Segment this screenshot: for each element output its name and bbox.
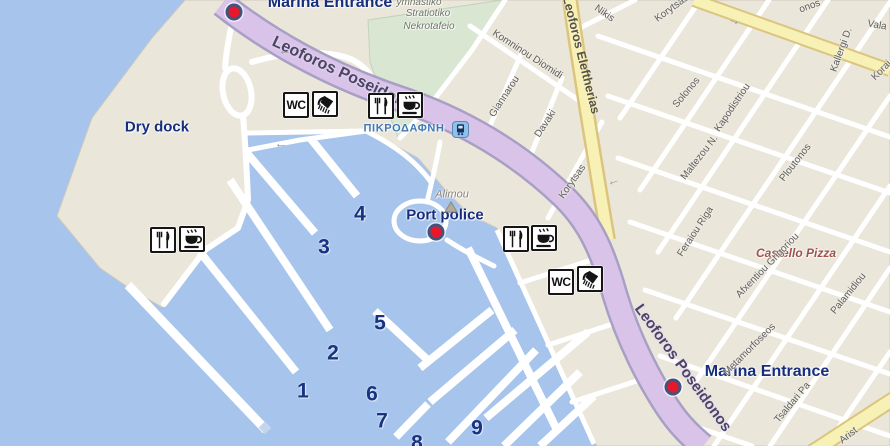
shower-icon [312,91,338,117]
pier-number-3: 3 [318,237,330,258]
shower-icon-glyph [314,93,336,115]
street-label: Arist [838,426,860,446]
pier-number-7: 7 [376,411,388,432]
marina-entrance-bottom-marker[interactable] [665,379,682,396]
train-station-icon-glyph [453,121,468,138]
restaurant-icon-glyph [505,228,527,250]
map-label-alimou-label: Alimou [435,190,469,201]
road-name-label: Leoforos Eleftherias [560,0,601,115]
one-way-arrow-icon: ← [275,137,288,150]
street-label: Tsaldari Pa [773,381,812,425]
marina-map-canvas[interactable]: Marina EntranceDry dockPort policeMarina… [0,0,890,446]
cafe-icon-glyph [399,94,421,116]
street-label: Nikis [592,4,615,25]
pier-number-5: 5 [374,313,386,334]
pier-number-6: 6 [366,384,378,405]
one-way-arrow-icon: ← [605,172,622,189]
station-icon [452,121,469,138]
map-label-pikrodafni-station-label: ΠΙΚΡΟΔΑΦΝΗ [363,124,444,135]
cafe-icon-glyph [533,227,555,249]
wc-icon-label: WC [287,98,306,112]
street-label: Feraiou Riga [676,205,716,258]
restaurant-icon [150,227,176,253]
pier-number-8: 8 [411,433,423,446]
restaurant-icon-glyph [152,229,174,251]
cafe-icon-glyph [181,228,203,250]
restaurant-icon [503,226,529,252]
pier-number-2: 2 [327,343,339,364]
cafe-icon [531,225,557,251]
street-label: Davaki [533,108,558,139]
wc-icon: WC [283,92,309,118]
street-label: Korytsas [558,163,589,201]
street-label: Komninou Diomidi [490,29,564,82]
street-label: Maltezou N. [680,134,721,182]
shower-icon-glyph [579,268,601,290]
street-label: Solonos [672,76,703,110]
cafe-icon [179,226,205,252]
one-way-arrow-icon: ← [279,44,292,57]
street-label: Palamidiou [830,272,869,317]
shower-icon [577,266,603,292]
map-overlay: Marina EntranceDry dockPort policeMarina… [0,0,890,446]
map-label-cemetery-label-line1: ymnastiko [396,0,441,8]
restaurant-icon-glyph [370,95,392,117]
street-label: Giannarou [488,75,522,120]
restaurant-icon [368,93,394,119]
pier-number-9: 9 [471,418,483,439]
wc-icon: WC [548,269,574,295]
street-label: Afxentiou Grigoriou [735,232,802,301]
street-label: Vala [867,19,888,32]
street-label: Kapodistriou [713,82,752,134]
monument-icon [444,200,458,212]
street-label: Korai [870,59,890,83]
street-label: Ploutonos [778,142,813,183]
marina-entrance-top-marker[interactable] [226,4,243,21]
street-label: Korytsas [653,0,690,24]
cafe-icon [397,92,423,118]
street-label: onos [798,0,822,15]
map-label-dry-dock-label: Dry dock [125,120,189,135]
one-way-arrow-icon: ← [725,16,742,33]
pier-number-4: 4 [354,204,366,225]
port-police-marker[interactable] [428,224,445,241]
street-label: Kallergi D. [829,27,854,74]
monument-icon-glyph [444,201,458,213]
wc-icon-label: WC [552,275,571,289]
pier-number-1: 1 [297,381,309,402]
map-label-cemetery-label-line3: Nekrotafeio [403,22,454,32]
map-label-marina-entrance-top-label: Marina Entrance [268,0,392,11]
map-label-cemetery-label-line2: Stratiotiko [406,9,450,19]
